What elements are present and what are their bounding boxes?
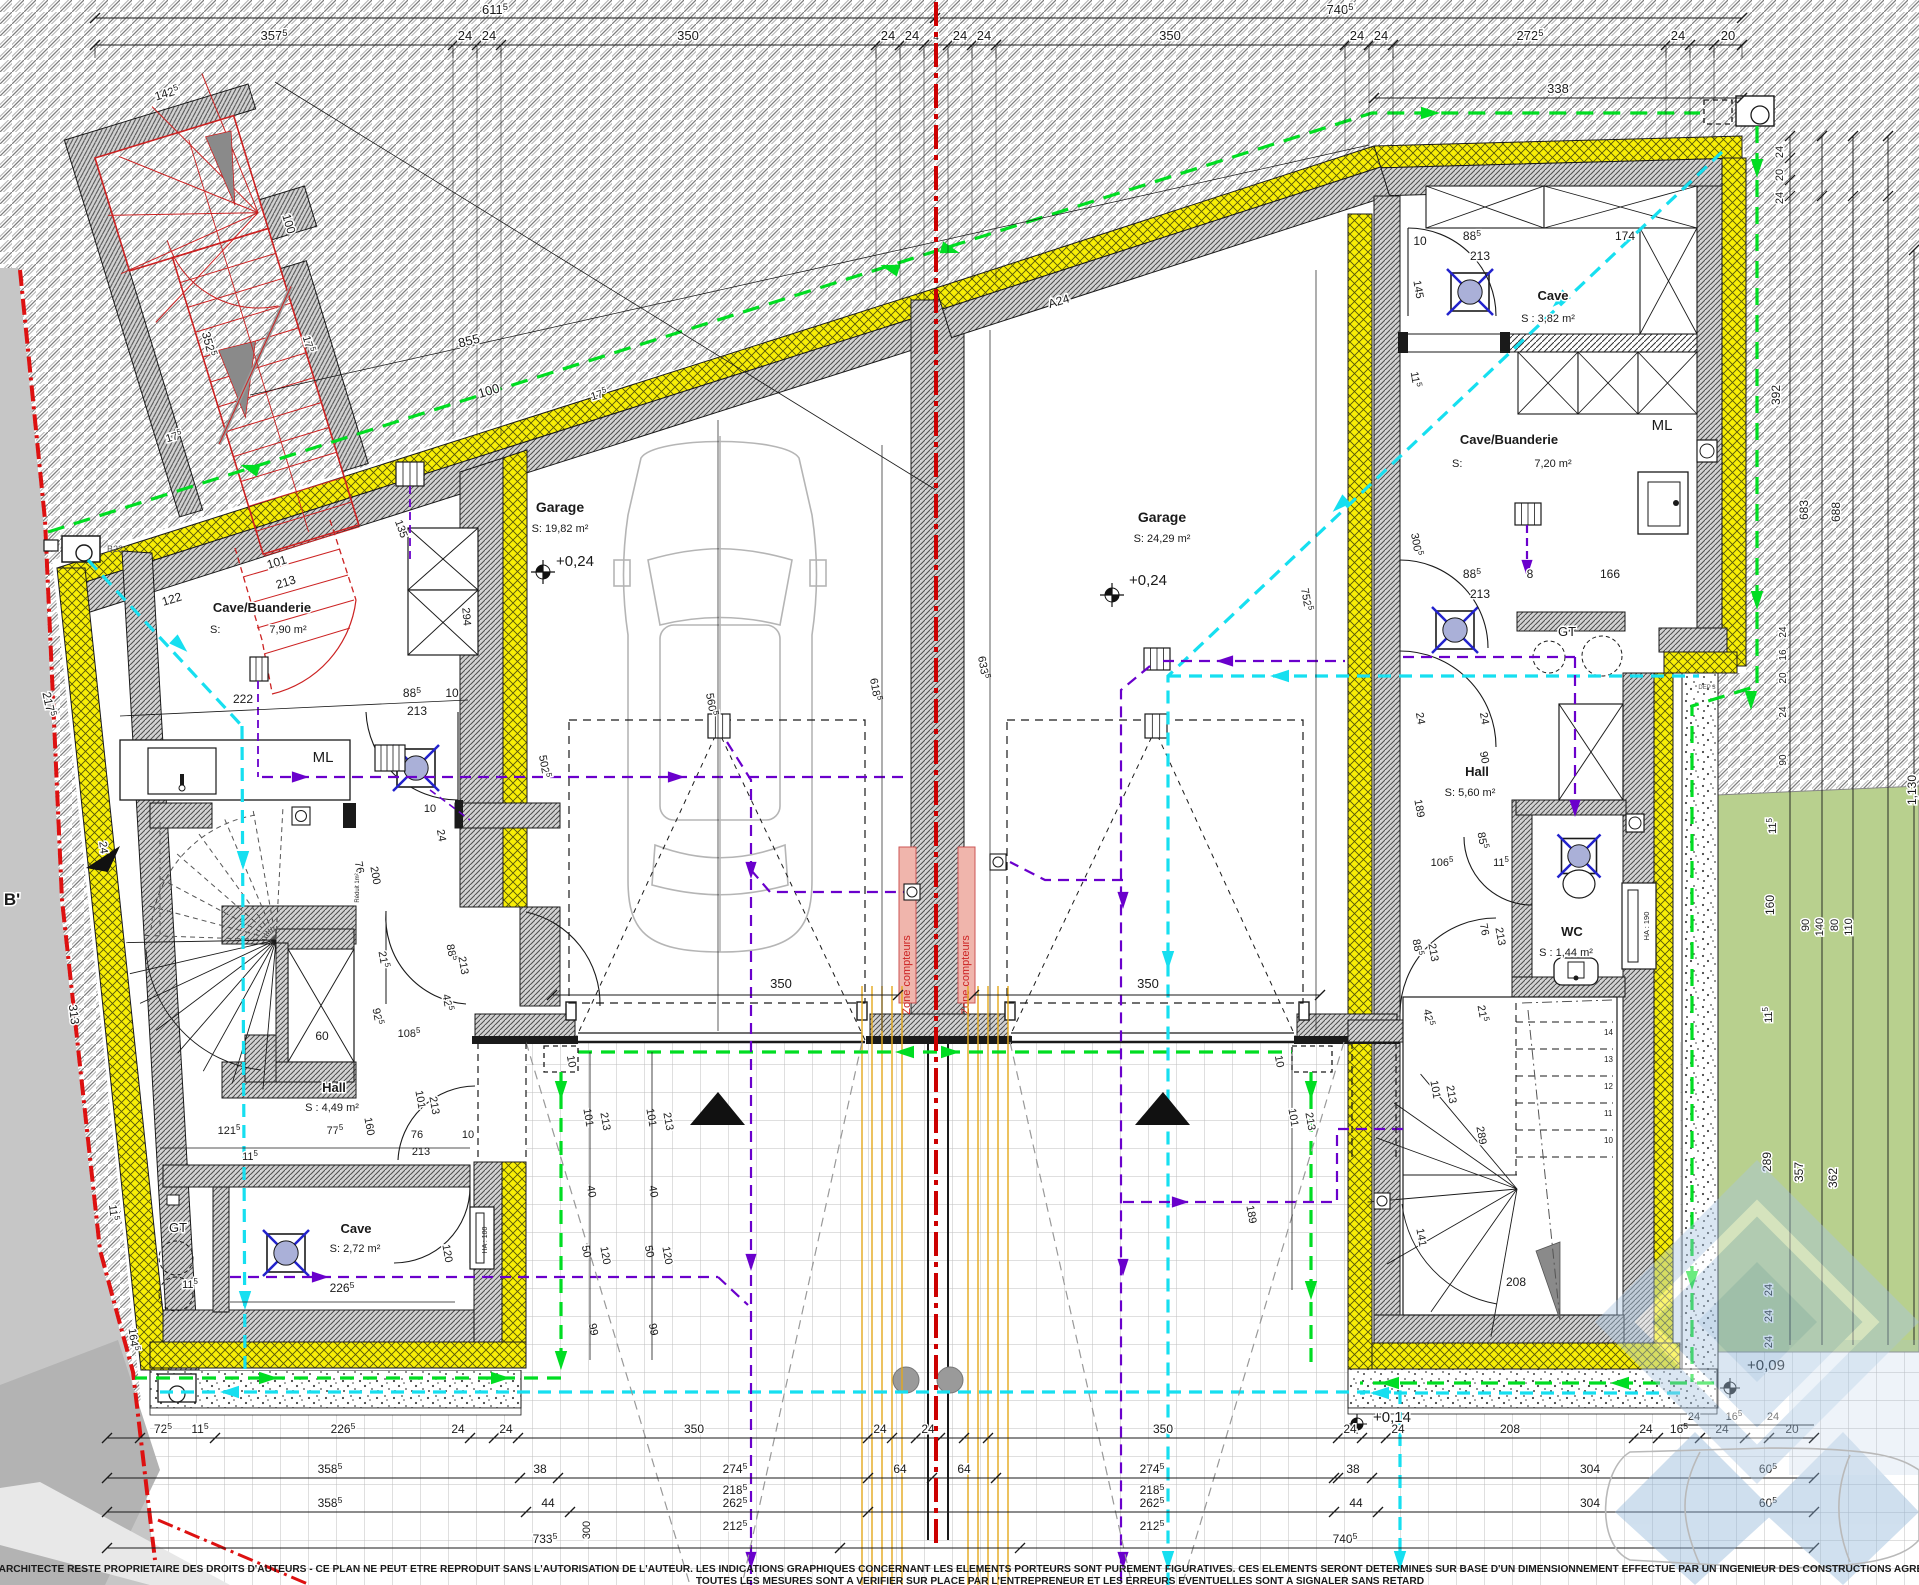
svg-text:76: 76: [352, 860, 366, 874]
svg-text:24: 24: [499, 1422, 513, 1436]
svg-text:TOUTES LES MESURES SONT A VERI: TOUTES LES MESURES SONT A VERIFIER SUR P…: [696, 1576, 1424, 1585]
svg-text:24: 24: [96, 841, 109, 855]
svg-text:110: 110: [1843, 918, 1855, 936]
svg-text:Hall: Hall: [322, 1080, 346, 1095]
svg-text:10: 10: [1272, 1054, 1286, 1068]
svg-text:24: 24: [873, 1422, 887, 1436]
svg-text:Cave: Cave: [340, 1221, 371, 1236]
svg-text:24: 24: [1477, 711, 1491, 725]
svg-text:20: 20: [1774, 169, 1786, 181]
svg-text:24: 24: [1774, 146, 1786, 158]
svg-text:40: 40: [646, 1184, 660, 1198]
svg-text:50: 50: [579, 1244, 593, 1258]
svg-text:350: 350: [1153, 1422, 1173, 1436]
svg-text:HA : 100: HA : 100: [482, 1226, 489, 1253]
svg-text:24: 24: [451, 1422, 465, 1436]
svg-text:S:: S:: [1452, 458, 1462, 470]
svg-text:10: 10: [445, 686, 459, 700]
svg-text:Hall: Hall: [1465, 764, 1489, 779]
svg-text:350: 350: [770, 976, 792, 991]
svg-text:24: 24: [482, 28, 496, 43]
svg-text:38: 38: [1346, 1462, 1360, 1476]
svg-text:357: 357: [1792, 1162, 1806, 1182]
svg-text:11: 11: [1604, 1109, 1613, 1118]
svg-text:208: 208: [1506, 1275, 1526, 1289]
svg-text:10: 10: [564, 1054, 578, 1068]
svg-text:24: 24: [1391, 1422, 1405, 1436]
svg-text:24: 24: [1350, 28, 1364, 43]
svg-text:174: 174: [1615, 229, 1635, 243]
svg-text:350: 350: [1137, 976, 1159, 991]
svg-text:Cave/Buanderie: Cave/Buanderie: [213, 600, 311, 615]
svg-text:90: 90: [1778, 754, 1789, 766]
svg-text:S : 4,49 m²: S : 4,49 m²: [305, 1102, 359, 1114]
svg-text:ML: ML: [1652, 417, 1673, 434]
svg-text:24: 24: [1343, 1422, 1357, 1436]
svg-text:+0,24: +0,24: [1129, 572, 1167, 589]
svg-text:14: 14: [1604, 1028, 1613, 1037]
svg-text:213: 213: [1470, 587, 1490, 601]
svg-text:64: 64: [893, 1462, 907, 1476]
svg-text:50: 50: [642, 1244, 656, 1258]
svg-text:Garage: Garage: [536, 499, 584, 515]
svg-text:350: 350: [1159, 28, 1181, 43]
svg-text:S:: S:: [210, 624, 220, 636]
svg-text:688: 688: [1829, 502, 1843, 522]
svg-text:304: 304: [1580, 1462, 1600, 1476]
svg-text:44: 44: [1349, 1496, 1363, 1510]
svg-text:140: 140: [1814, 918, 1826, 936]
svg-text:S: 5,60 m²: S: 5,60 m²: [1445, 787, 1496, 799]
svg-text:10: 10: [1413, 234, 1427, 248]
svg-text:20: 20: [1778, 672, 1789, 684]
svg-text:7,90 m²: 7,90 m²: [269, 624, 307, 636]
svg-text:44: 44: [541, 1496, 555, 1510]
svg-text:90: 90: [1800, 919, 1812, 931]
svg-text:10: 10: [424, 803, 436, 815]
svg-text:Cave/Buanderie: Cave/Buanderie: [1460, 432, 1558, 447]
svg-text:WC: WC: [1561, 924, 1583, 939]
svg-text:80: 80: [1829, 919, 1841, 931]
svg-text:Zone compteurs: Zone compteurs: [960, 935, 972, 1015]
svg-text:S : 1,44 m²: S : 1,44 m²: [1539, 947, 1593, 959]
svg-text:362: 362: [1826, 1168, 1840, 1188]
svg-text:Zone compteurs: Zone compteurs: [901, 935, 913, 1015]
svg-text:L'ARCHITECTE RESTE PROPRIETAIR: L'ARCHITECTE RESTE PROPRIETAIRE DES DROI…: [0, 1564, 1919, 1575]
svg-text:24: 24: [1413, 711, 1427, 725]
svg-text:S: 2,72 m²: S: 2,72 m²: [330, 1243, 381, 1255]
svg-text:313: 313: [66, 1004, 82, 1026]
svg-text:Cave: Cave: [1537, 288, 1568, 303]
svg-text:7,20 m²: 7,20 m²: [1534, 458, 1572, 470]
svg-text:166: 166: [1600, 567, 1620, 581]
svg-text:HA : 190: HA : 190: [1642, 912, 1651, 941]
svg-text:B22: B22: [107, 544, 123, 554]
svg-text:24: 24: [921, 1422, 935, 1436]
svg-text:24: 24: [1778, 706, 1789, 718]
svg-text:10: 10: [1604, 1136, 1613, 1145]
svg-text:90: 90: [1477, 750, 1491, 764]
svg-text:24: 24: [1774, 192, 1786, 204]
svg-text:20: 20: [1721, 28, 1735, 43]
svg-text:38: 38: [533, 1462, 547, 1476]
svg-text:S : 3,82 m²: S : 3,82 m²: [1521, 313, 1575, 325]
svg-text:10: 10: [462, 1129, 474, 1141]
svg-text:DEP 3: DEP 3: [1698, 685, 1716, 691]
svg-text:Réduit 1m²: Réduit 1m²: [355, 873, 361, 902]
svg-text:16: 16: [1778, 649, 1789, 661]
svg-text:350: 350: [684, 1422, 704, 1436]
svg-text:24: 24: [977, 28, 991, 43]
svg-text:Garage: Garage: [1138, 509, 1186, 525]
svg-text:GT: GT: [1558, 624, 1576, 639]
svg-text:24: 24: [1778, 626, 1789, 638]
svg-text:392: 392: [1769, 385, 1783, 405]
svg-text:B': B': [4, 890, 20, 909]
svg-text:76: 76: [411, 1129, 423, 1141]
svg-text:304: 304: [1580, 1496, 1600, 1510]
svg-text:24: 24: [1671, 28, 1685, 43]
svg-text:24: 24: [458, 28, 472, 43]
svg-text:64: 64: [957, 1462, 971, 1476]
svg-text:12: 12: [1604, 1082, 1613, 1091]
svg-text:294: 294: [459, 607, 473, 626]
svg-text:160: 160: [1763, 895, 1777, 915]
svg-text:1,130: 1,130: [1905, 775, 1919, 805]
svg-text:99: 99: [586, 1322, 600, 1336]
svg-text:13: 13: [1604, 1055, 1613, 1064]
svg-text:GT: GT: [169, 1220, 187, 1235]
svg-text:60: 60: [315, 1029, 329, 1043]
svg-text:213: 213: [407, 704, 427, 718]
svg-text:ML: ML: [313, 749, 334, 766]
svg-text:208: 208: [1500, 1422, 1520, 1436]
svg-text:S: 19,82 m²: S: 19,82 m²: [532, 523, 589, 535]
svg-text:24: 24: [881, 28, 895, 43]
svg-text:683: 683: [1797, 500, 1811, 520]
svg-text:24: 24: [1639, 1422, 1653, 1436]
svg-text:213: 213: [1470, 249, 1490, 263]
svg-text:24: 24: [1374, 28, 1388, 43]
svg-text:S: 24,29 m²: S: 24,29 m²: [1134, 533, 1191, 545]
svg-text:338: 338: [1547, 81, 1569, 96]
svg-text:40: 40: [584, 1184, 598, 1198]
svg-text:350: 350: [677, 28, 699, 43]
svg-text:76: 76: [1477, 922, 1491, 936]
svg-text:24: 24: [434, 828, 448, 842]
svg-text:24: 24: [953, 28, 967, 43]
svg-text:+0,24: +0,24: [556, 553, 594, 570]
svg-text:222: 222: [233, 692, 253, 706]
svg-text:8: 8: [1527, 567, 1534, 581]
svg-text:300: 300: [581, 1521, 593, 1539]
svg-text:99: 99: [646, 1322, 660, 1336]
svg-text:24: 24: [905, 28, 919, 43]
